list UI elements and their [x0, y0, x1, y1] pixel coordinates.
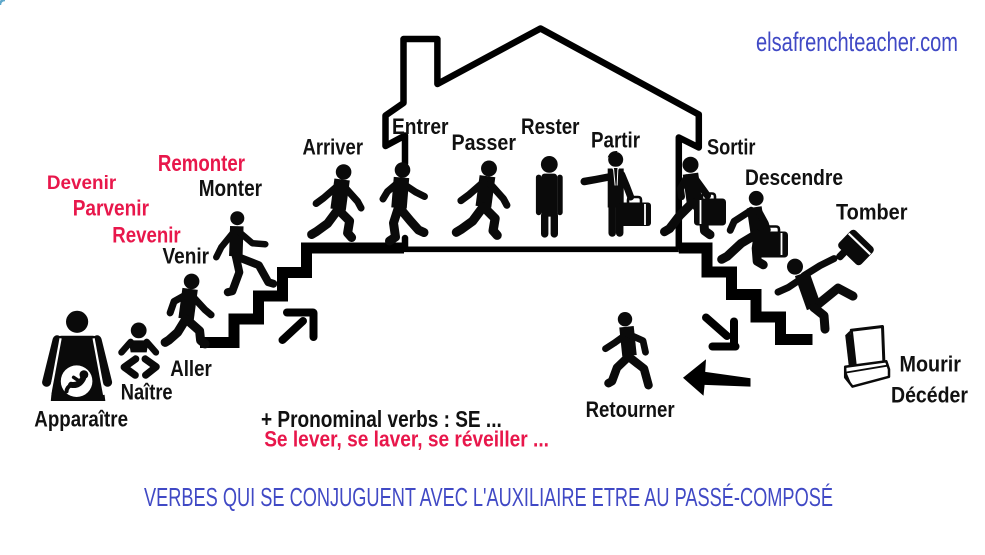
- svg-text:elsafrenchteacher.com: elsafrenchteacher.com: [756, 27, 958, 57]
- svg-text:Décéder: Décéder: [891, 383, 968, 408]
- svg-text:Arriver: Arriver: [303, 135, 364, 160]
- svg-text:Devenir: Devenir: [47, 172, 117, 194]
- svg-text:Parvenir: Parvenir: [73, 196, 150, 221]
- svg-text:Apparaître: Apparaître: [34, 407, 128, 432]
- svg-text:VERBES QUI SE CONJUGUENT AVEC: VERBES QUI SE CONJUGUENT AVEC L'AUXILIAI…: [144, 483, 833, 512]
- svg-text:Monter: Monter: [199, 175, 262, 201]
- svg-text:Rester: Rester: [521, 114, 580, 139]
- svg-text:Passer: Passer: [452, 130, 517, 155]
- svg-text:Retourner: Retourner: [586, 397, 675, 422]
- svg-text:Remonter: Remonter: [158, 150, 245, 176]
- svg-text:Se lever, se laver, se réveill: Se lever, se laver, se réveiller ...: [264, 427, 549, 452]
- svg-text:Mourir: Mourir: [900, 352, 962, 377]
- svg-text:Partir: Partir: [591, 128, 640, 153]
- svg-text:Entrer: Entrer: [392, 114, 449, 139]
- svg-text:Tomber: Tomber: [836, 200, 908, 225]
- svg-text:Aller: Aller: [170, 356, 212, 381]
- svg-text:Descendre: Descendre: [745, 165, 843, 190]
- svg-text:Sortir: Sortir: [707, 135, 756, 160]
- svg-text:Naître: Naître: [121, 380, 173, 405]
- svg-text:Venir: Venir: [163, 244, 210, 269]
